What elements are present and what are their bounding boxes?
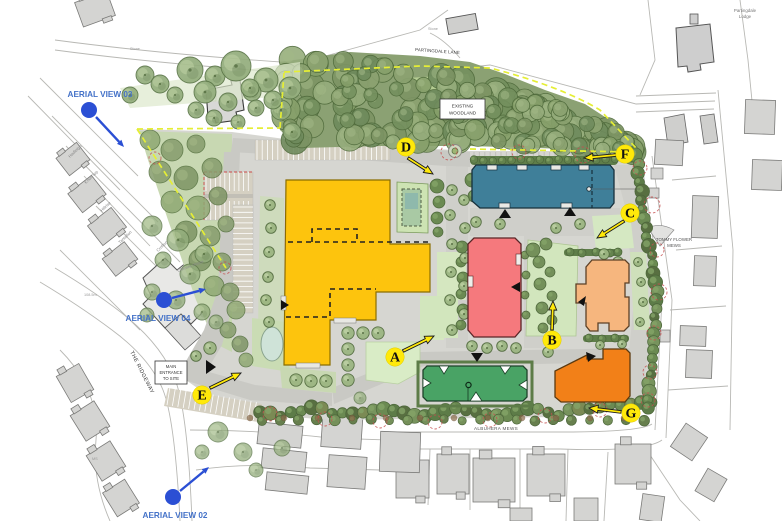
svg-text:WOODLAND: WOODLAND — [449, 111, 477, 116]
svg-text:ENTRANCE: ENTRANCE — [159, 370, 182, 375]
svg-text:AERIAL VIEW 02: AERIAL VIEW 02 — [143, 511, 208, 520]
svg-text:MEWS: MEWS — [667, 243, 681, 248]
svg-text:108.5m: 108.5m — [84, 293, 97, 297]
svg-text:D: D — [401, 141, 411, 156]
svg-text:Partingdale: Partingdale — [734, 8, 757, 13]
svg-text:A: A — [390, 351, 401, 366]
svg-text:MS: MS — [92, 457, 98, 461]
svg-text:AERIAL VIEW 04: AERIAL VIEW 04 — [126, 314, 191, 323]
svg-text:Stone: Stone — [428, 27, 438, 31]
svg-text:Lodge: Lodge — [739, 14, 752, 19]
svg-text:E: E — [197, 389, 206, 404]
svg-text:G: G — [626, 407, 637, 422]
svg-text:AERIAL VIEW 03: AERIAL VIEW 03 — [68, 90, 133, 99]
svg-text:ALBUHERA MEWS: ALBUHERA MEWS — [474, 426, 518, 431]
svg-text:TO SITE: TO SITE — [163, 376, 179, 381]
svg-text:B: B — [547, 334, 556, 349]
svg-text:EXISTING: EXISTING — [452, 104, 474, 109]
svg-text:TOMMY FLOWER: TOMMY FLOWER — [656, 237, 692, 242]
svg-text:PARTINGDALE LANE: PARTINGDALE LANE — [415, 47, 460, 55]
svg-text:Stone: Stone — [130, 47, 140, 51]
svg-text:MAIN: MAIN — [166, 364, 176, 369]
svg-text:F: F — [621, 148, 630, 163]
svg-text:C: C — [625, 207, 635, 222]
